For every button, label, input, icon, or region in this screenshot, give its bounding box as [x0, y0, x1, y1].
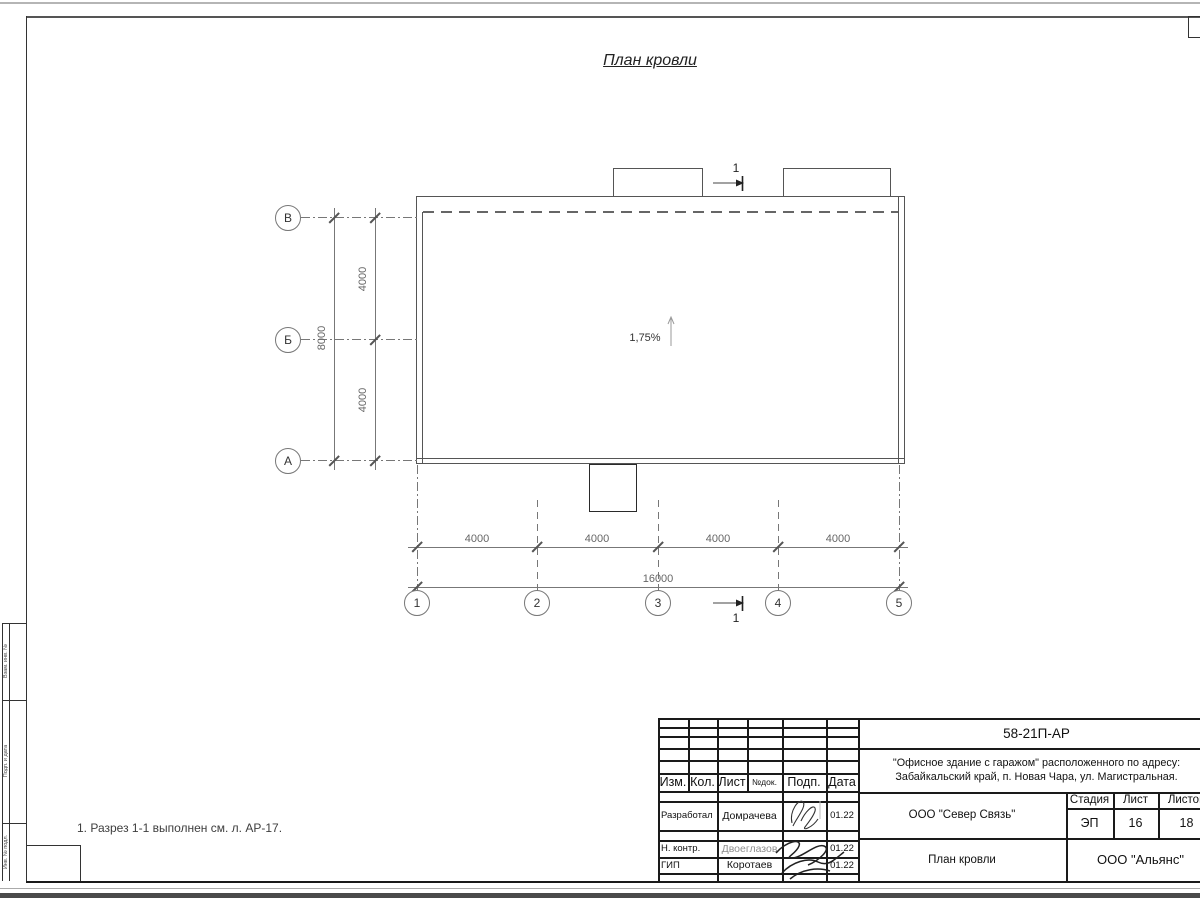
titleblock-sheet-name: План кровли: [858, 838, 1066, 881]
section-mark-top-arrow-icon: [712, 175, 750, 192]
titleblock-col-podp: Подп.: [782, 773, 826, 791]
frame-top-line: [26, 16, 1200, 18]
axis-circle-a: А: [275, 448, 301, 474]
side-stamp-label: Взам. инв. №: [2, 633, 10, 689]
dimension-label: 4000: [567, 532, 627, 545]
dimension-line: [408, 587, 908, 588]
titleblock-line: [658, 718, 660, 881]
frame-bottom-line: [26, 881, 1200, 883]
dimension-label: 4000: [447, 532, 507, 545]
format-box-line: [26, 845, 80, 846]
sheet-number: 16: [1113, 808, 1158, 838]
dimension-label: 4000: [808, 532, 868, 545]
axis-circle-5: 5: [886, 590, 912, 616]
section-mark-top-label: 1: [726, 161, 746, 175]
titleblock-col-kol: Кол.: [688, 773, 717, 791]
rooftop-structure-1: [613, 168, 703, 197]
sheet-top-edge: [0, 2, 1200, 4]
dimension-label: 4000: [688, 532, 748, 545]
project-line1: "Офисное здание с гаражом" расположенног…: [893, 756, 1180, 770]
dimension-label: 16000: [628, 572, 688, 585]
side-stamp-label: Подп. и дата: [2, 733, 10, 789]
parapet-line-bottom: [417, 458, 904, 459]
rooftop-structure-2: [783, 168, 891, 197]
titleblock-col-data: Дата: [826, 773, 858, 791]
drawing-sheet: { "sheet": { "title": "План кровли", "no…: [0, 0, 1200, 900]
section-mark-bottom-arrow-icon: [712, 595, 750, 612]
drawing-note: 1. Разрез 1-1 выполнен см. л. АР-17.: [77, 820, 377, 836]
axis-circle-b: Б: [275, 327, 301, 353]
titleblock-doc-number: 58-21П-АР: [858, 718, 1200, 748]
side-stamp-label: Инв. № подл.: [2, 824, 10, 880]
titleblock-col-list: Лист: [717, 773, 747, 791]
section-mark-bottom-label: 1: [726, 611, 746, 625]
dimension-label: 4000: [356, 249, 370, 309]
role-label: Н. контр.: [661, 840, 717, 857]
sheets-total: 18: [1158, 808, 1200, 838]
axis-circle-4: 4: [765, 590, 791, 616]
role-name: Домрачева: [717, 801, 782, 830]
role-label: Разработал: [661, 801, 717, 830]
project-line2: Забайкальский край, п. Новая Чара, ул. М…: [895, 770, 1177, 784]
page-title: План кровли: [520, 50, 780, 72]
sheets-label: Листов: [1158, 792, 1200, 808]
dimension-line: [334, 208, 335, 470]
side-stamp-line: [2, 700, 27, 701]
titleblock-line: [658, 830, 858, 832]
dimension-label: 8000: [315, 308, 329, 368]
parapet-line-right: [898, 197, 899, 464]
axis-line: [301, 460, 417, 461]
signature-2: [770, 835, 850, 881]
frame-left-line: [26, 16, 27, 881]
axis-line: [417, 465, 418, 591]
side-stamp-line: [2, 623, 27, 624]
sheet-bottom-edge: [0, 893, 1200, 898]
stage-label: Стадия: [1066, 792, 1113, 808]
slope-label: 1,75%: [620, 330, 670, 345]
role-label: ГИП: [661, 857, 717, 873]
corner-stamp-box: [1188, 16, 1200, 38]
axis-circle-3: 3: [645, 590, 671, 616]
sheet-label: Лист: [1113, 792, 1158, 808]
role-date: 01.22: [826, 801, 858, 830]
parapet-line-left: [422, 212, 423, 464]
titleblock-line: [658, 791, 858, 793]
axis-line: [301, 217, 417, 218]
axis-circle-2: 2: [524, 590, 550, 616]
titleblock-project: "Офисное здание с гаражом" расположенног…: [858, 748, 1200, 792]
titleblock-company: ООО "Альянс": [1066, 838, 1200, 881]
stage-value: ЭП: [1066, 808, 1113, 838]
axis-line: [899, 465, 900, 591]
axis-circle-1: 1: [404, 590, 430, 616]
dimension-label: 4000: [356, 370, 370, 430]
axis-circle-v: В: [275, 205, 301, 231]
titleblock-col-izm: Изм.: [658, 773, 688, 791]
slope-direction-arrow-icon: [665, 314, 677, 348]
titleblock-contractor: ООО "Север Связь": [858, 792, 1066, 838]
titleblock-col-ndok: №док.: [747, 773, 782, 791]
roof-eaves-dashed-line: [423, 211, 898, 213]
sheet-bottom-thin-edge: [0, 888, 1200, 889]
signature-1: [784, 793, 826, 833]
entrance-canopy: [589, 464, 637, 512]
format-box-line: [80, 845, 81, 881]
